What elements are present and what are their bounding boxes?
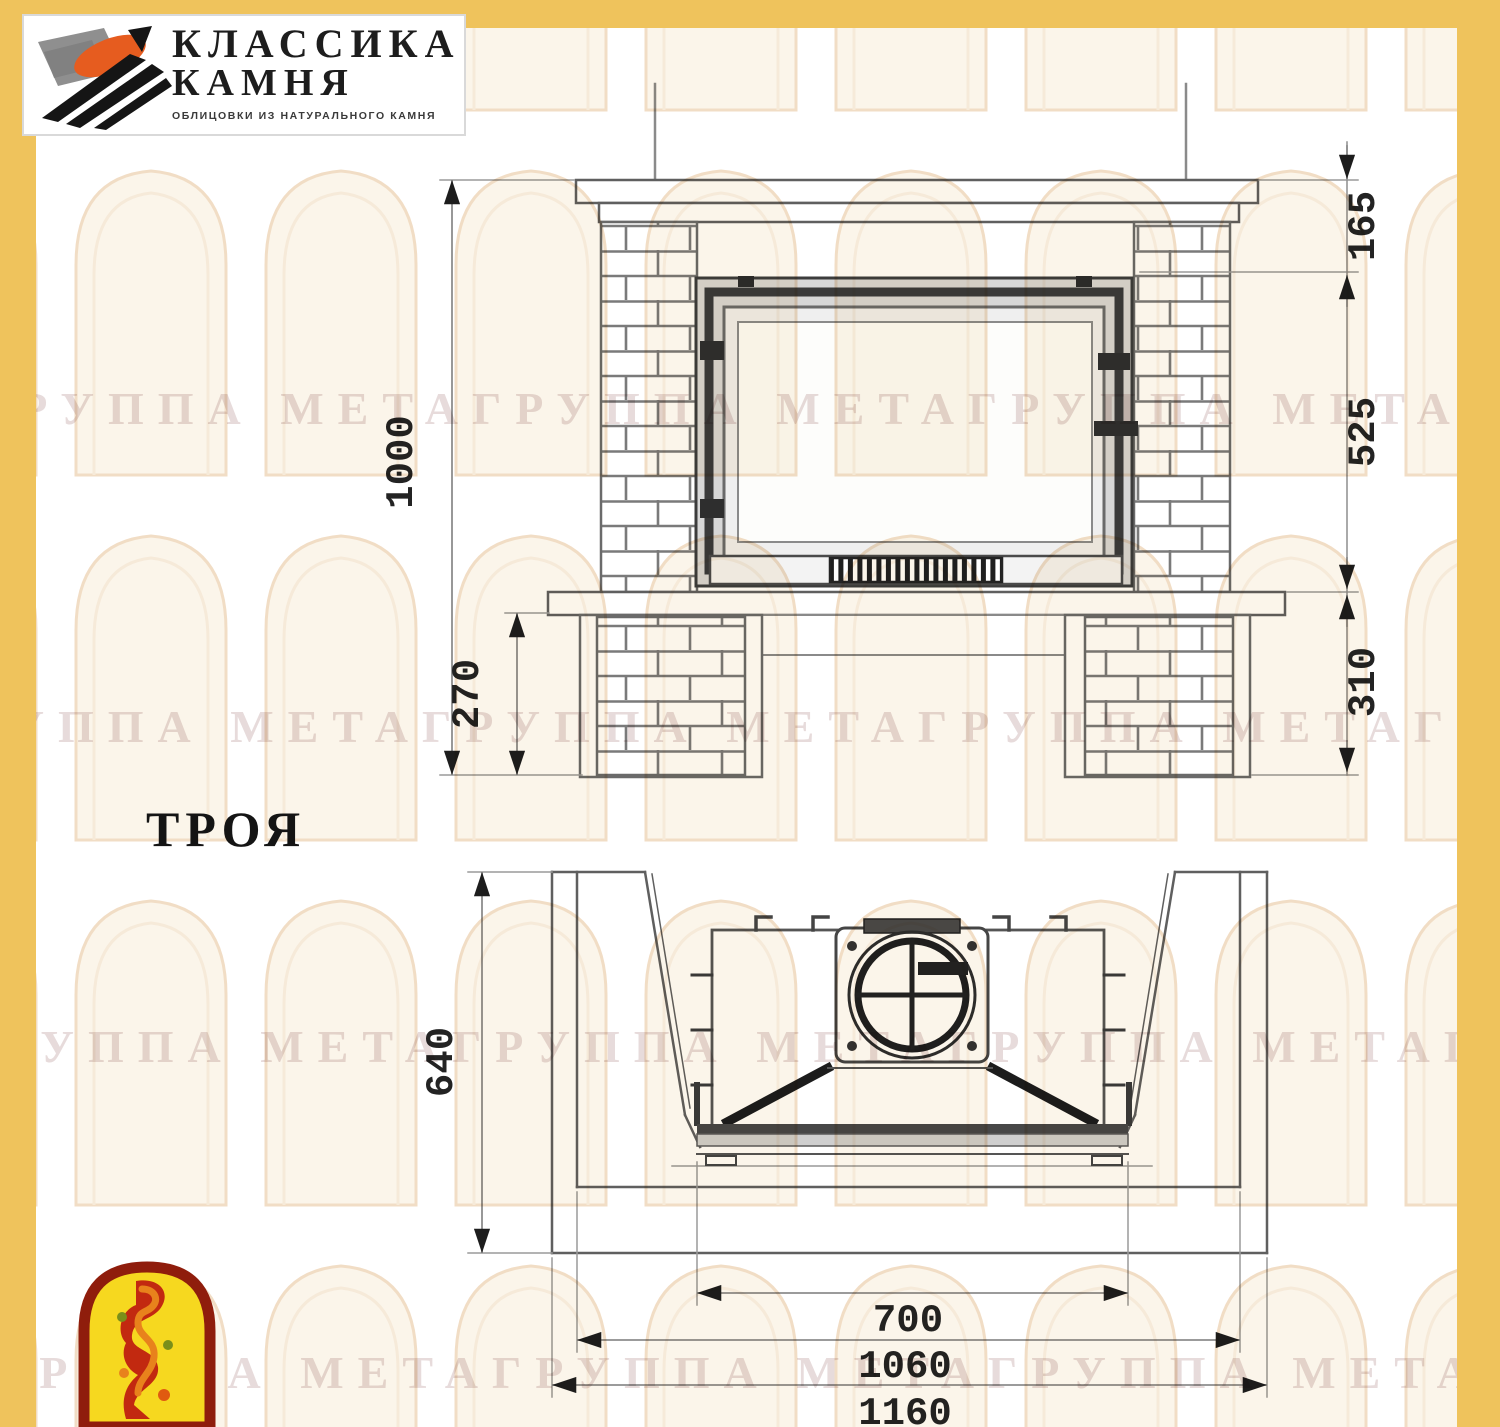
dimension-label-165: 165: [1342, 191, 1386, 261]
plan-right-wall: [1120, 872, 1267, 1253]
logo-title-line1: КЛАССИКА: [172, 24, 472, 64]
model-name-label: ТРОЯ: [146, 800, 306, 858]
dimension-right-chain: 165 525 310: [1342, 142, 1386, 775]
brick-column-left: [601, 222, 697, 592]
dimension-label-1000: 1000: [380, 415, 424, 509]
front-view: 1000 270 165 525 310: [380, 84, 1386, 777]
company-logo: КЛАССИКА КАМНЯ ОБЛИЦОВКИ ИЗ НАТУРАЛЬНОГО…: [22, 14, 466, 136]
vent-grille: [830, 558, 1002, 582]
dimension-body-width: 1060: [578, 1340, 1239, 1389]
dimension-label-1060: 1060: [858, 1345, 952, 1389]
flue-outlet: [849, 932, 975, 1058]
dimension-total-width: 1160: [553, 1385, 1266, 1427]
door-hinge-top: [700, 341, 724, 360]
mantel-shelf: [576, 180, 1258, 203]
door-clip-left: [738, 276, 754, 287]
page: 1000 270 165 525 310: [0, 0, 1500, 1427]
dimension-label-270: 270: [446, 659, 490, 729]
plan-firebox-body: [692, 917, 1124, 1126]
dimension-label-525: 525: [1342, 397, 1386, 467]
brick-column-right: [1134, 222, 1230, 592]
dimension-pedestal: 270: [446, 614, 517, 774]
plan-left-wall: [552, 872, 700, 1253]
dimension-label-310: 310: [1342, 647, 1386, 717]
plan-left-wall-splay: [645, 872, 685, 1115]
dimension-label-700: 700: [873, 1299, 943, 1343]
hearth-slab: [548, 592, 1285, 615]
door-clip-right: [1076, 276, 1092, 287]
mantel-molding: [599, 203, 1239, 222]
dimension-label-640: 640: [420, 1027, 464, 1097]
dimension-opening-width: 700: [698, 1293, 1127, 1343]
pedestal-left: [580, 615, 762, 777]
logo-tagline: ОБЛИЦОВКИ ИЗ НАТУРАЛЬНОГО КАМНЯ: [172, 110, 472, 122]
firebird-emblem: [76, 1253, 218, 1427]
door-latch: [1098, 353, 1130, 370]
fireplace-technical-drawing: 1000 270 165 525 310: [0, 0, 1500, 1427]
firebox-insert: [696, 276, 1138, 586]
door-hinge-bottom: [700, 499, 724, 518]
logo-title-line2: КАМНЯ: [172, 64, 472, 104]
dimension-height-total: 1000: [380, 181, 452, 774]
flue-damper-lever: [918, 962, 968, 975]
logo-graphic-icon: [32, 22, 172, 130]
plan-view: 640 700 1060 1160: [420, 872, 1267, 1427]
pedestal-right: [1065, 615, 1250, 777]
firebox-glass: [738, 322, 1092, 542]
dimension-depth: 640: [420, 873, 482, 1252]
base-plinth: [762, 615, 1065, 655]
plan-right-wall-splay: [1135, 872, 1175, 1115]
door-handle: [1094, 421, 1138, 436]
dimension-label-1160: 1160: [858, 1392, 952, 1427]
